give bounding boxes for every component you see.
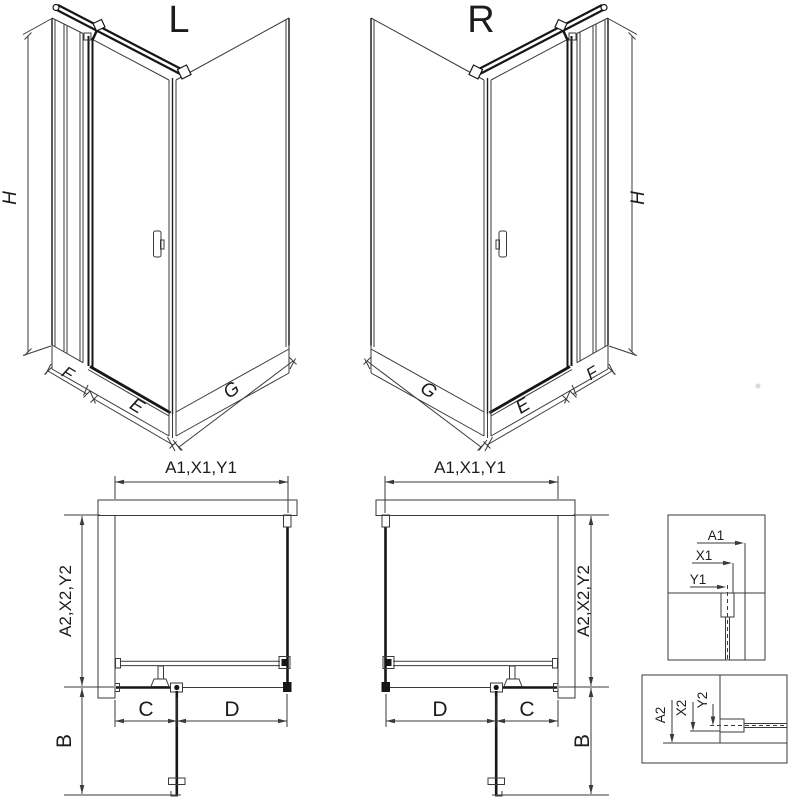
dim-label-height-right: H	[628, 191, 649, 205]
plan-dim-door-right: D	[432, 698, 447, 721]
dim-label-fixed-left: F	[58, 362, 78, 384]
right-plan-view: A1,X1,Y1 A2,X2,Y2 D C B	[376, 458, 609, 796]
shower-enclosure-diagram: L H F E G R H F E G A1,X1,Y1 A2,X2,Y2 C …	[0, 0, 800, 800]
detail-box-depth-adjustment: A2 X2 Y2	[642, 675, 787, 763]
plan-dim-depth-right: A2,X2,Y2	[574, 565, 593, 637]
plan-dim-fixed-right: C	[519, 698, 534, 721]
detail-box-width-adjustment: A1 X1 Y1	[668, 515, 765, 660]
plan-dim-fixed-left: C	[138, 698, 153, 721]
view-title-right: R	[467, 0, 494, 41]
plan-dim-width-left: A1,X1,Y1	[165, 458, 237, 477]
detail-label-y2: Y2	[695, 692, 710, 709]
dim-label-side-left: G	[220, 378, 244, 404]
detail-label-a1: A1	[708, 528, 725, 543]
plan-dim-door-left: D	[224, 698, 239, 721]
dim-label-height-left: H	[0, 191, 21, 205]
detail-label-y1: Y1	[690, 572, 707, 587]
wall-side-right-plan	[558, 516, 575, 699]
detail-label-x1: X1	[696, 548, 713, 563]
wall-side-left-plan	[98, 516, 115, 699]
plan-dim-depth-left: A2,X2,Y2	[56, 565, 75, 637]
view-title-left: L	[168, 0, 189, 41]
detail-label-x2: X2	[674, 700, 689, 717]
left-plan-view: A1,X1,Y1 A2,X2,Y2 C D B	[53, 458, 297, 796]
diagram-canvas: L H F E G R H F E G A1,X1,Y1 A2,X2,Y2 C …	[0, 0, 800, 800]
plan-dim-swing-left: B	[53, 734, 76, 748]
plan-dim-swing-right: B	[571, 734, 594, 748]
right-3d-view: R H F E G	[364, 0, 650, 451]
left-3d-view: L H F E G	[0, 0, 297, 451]
wall-top-left-plan	[98, 500, 297, 516]
detail-label-a2: A2	[653, 707, 668, 724]
dim-label-door-right: E	[512, 394, 534, 419]
dim-label-fixed-right: F	[583, 362, 603, 384]
watermark-dot	[756, 384, 761, 389]
wall-top-right-plan	[376, 500, 575, 516]
plan-dim-width-right: A1,X1,Y1	[434, 458, 506, 477]
dim-label-door-left: E	[126, 394, 148, 419]
dim-label-side-right: G	[416, 378, 440, 404]
